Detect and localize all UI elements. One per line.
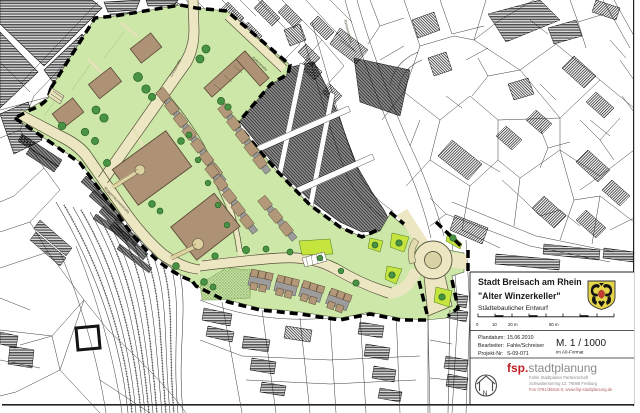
svg-text:Plandatum:: Plandatum: [478, 335, 505, 341]
svg-text:im A0-Format: im A0-Format [556, 350, 584, 355]
svg-text:"Alter Winzerkeller": "Alter Winzerkeller" [478, 291, 561, 301]
svg-text:fsp.stadtplanung: fsp.stadtplanung [507, 361, 597, 375]
svg-text:M. 1 / 1000: M. 1 / 1000 [556, 338, 606, 349]
svg-text:Städtebaulicher Entwurf: Städtebaulicher Entwurf [478, 305, 548, 312]
svg-text:Schwabentorring 12, 79098 Frei: Schwabentorring 12, 79098 Freiburg [529, 381, 598, 386]
svg-text:Bearbeiter:: Bearbeiter: [478, 343, 504, 349]
svg-text:Projekt-Nr:: Projekt-Nr: [478, 351, 503, 357]
svg-text:20 m: 20 m [508, 322, 518, 327]
svg-text:N: N [483, 391, 488, 398]
svg-text:50 m: 50 m [549, 322, 559, 327]
svg-text:S-09-071: S-09-071 [507, 351, 529, 357]
svg-text:Fahle/Schreiser: Fahle/Schreiser [507, 343, 544, 349]
svg-text:15.06.2010: 15.06.2010 [507, 335, 534, 341]
svg-text:Fon 0761/36815-0, www.fsp-stad: Fon 0761/36815-0, www.fsp-stadtplanung.d… [529, 387, 613, 392]
svg-text:Stadt Breisach am Rhein: Stadt Breisach am Rhein [478, 277, 582, 287]
svg-text:10: 10 [492, 322, 497, 327]
svg-text:Fahle Stadtplaner Partnerschaf: Fahle Stadtplaner Partnerschaft [529, 375, 589, 380]
